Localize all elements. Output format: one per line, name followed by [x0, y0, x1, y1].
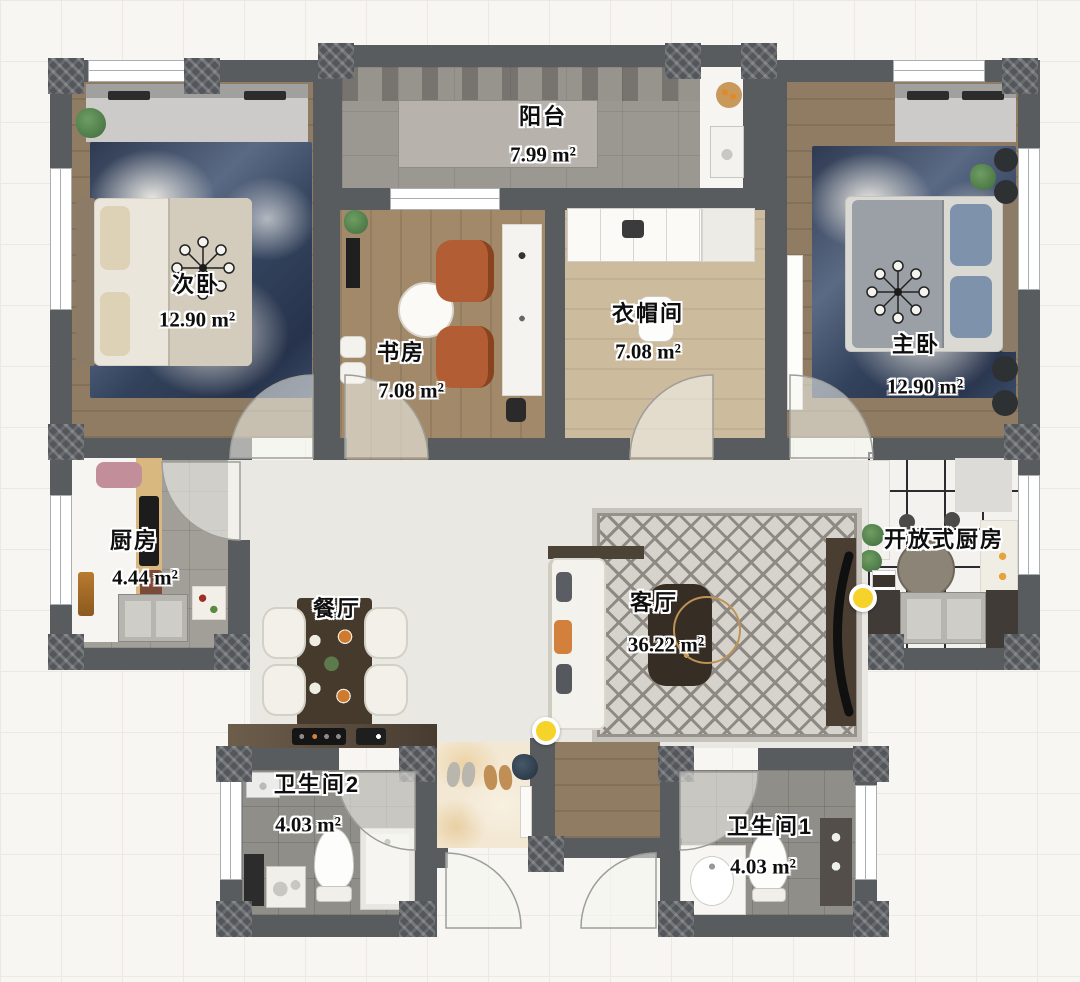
kitchen-label: 厨房: [110, 523, 158, 555]
secondary-bedroom-area: 12.90 m²: [159, 308, 235, 333]
bathroom1-label: 卫生间1: [727, 809, 813, 841]
cloakroom-label: 衣帽间: [612, 296, 684, 328]
corner-pillar: [1004, 424, 1040, 460]
wall: [313, 188, 765, 210]
corner-pillar: [318, 43, 354, 79]
window: [50, 168, 72, 310]
toilet-tank: [752, 888, 786, 902]
wall: [765, 60, 787, 460]
kitchen-area: 4.44 m²: [112, 566, 178, 591]
vanity: [360, 828, 415, 910]
study-area: 7.08 m²: [378, 379, 444, 404]
corner-pillar: [868, 634, 904, 670]
corner-pillar: [528, 836, 564, 872]
balcony-label: 阳台: [519, 99, 567, 131]
stool: [622, 220, 644, 238]
desk: [502, 224, 542, 396]
dining-chair: [364, 664, 408, 716]
dining-chair: [262, 607, 306, 659]
plant: [344, 210, 368, 234]
corner-pillar: [184, 58, 220, 94]
window: [88, 60, 186, 82]
bathroom2-label: 卫生间2: [274, 767, 360, 799]
living-rug: [592, 508, 862, 742]
window: [220, 775, 242, 880]
bay-window-curtain: [895, 84, 1016, 142]
wall: [428, 438, 630, 460]
plant: [862, 524, 884, 546]
window: [855, 785, 877, 880]
stool: [340, 362, 366, 384]
dining-chair: [262, 664, 306, 716]
corner-pillar: [48, 634, 84, 670]
light-marker-icon[interactable]: [532, 717, 560, 745]
floor-plan-canvas: 阳台 7.99 m² 次卧 12.90 m² 书房 7.08 m² 衣帽间 7.…: [0, 0, 1080, 982]
small-appliance: [96, 462, 142, 488]
dining-chair: [364, 607, 408, 659]
nightstand: [994, 180, 1018, 204]
pillow: [100, 292, 130, 356]
wall: [313, 438, 347, 460]
desk-chair: [506, 398, 526, 422]
bathroom1-area: 4.03 m²: [730, 855, 796, 880]
fruit-basket: [716, 82, 742, 108]
sofa-pillow: [554, 620, 572, 654]
bed-headboard: [76, 198, 96, 366]
corner-pillar: [665, 43, 701, 79]
window: [1018, 148, 1040, 290]
pillow: [100, 206, 130, 270]
window: [50, 495, 72, 605]
balcony-area: 7.99 m²: [510, 143, 576, 168]
tv-console: [826, 538, 856, 726]
dresser: [702, 208, 755, 262]
armchair: [436, 240, 494, 302]
kitchen-mat: [955, 458, 1012, 512]
bed-duvet: [852, 200, 944, 348]
shoe-cabinet: [520, 786, 532, 838]
pillow: [950, 276, 992, 338]
corner-pillar: [48, 58, 84, 94]
plant: [970, 164, 996, 190]
master-bedroom-area: 12.90 m²: [887, 375, 963, 400]
corner-pillar: [1004, 634, 1040, 670]
open-kitchen-sink: [900, 592, 986, 644]
corner-pillar: [1002, 58, 1038, 94]
bath-cabinet: [244, 854, 264, 906]
corner-pillar: [399, 901, 435, 937]
pillow: [950, 204, 992, 266]
wall: [418, 848, 448, 868]
plant: [860, 550, 882, 572]
armchair: [436, 326, 494, 388]
corner-pillar: [853, 746, 889, 782]
bathroom2-area: 4.03 m²: [275, 813, 341, 838]
living-room-label: 客厅: [630, 585, 678, 617]
window: [1018, 475, 1040, 575]
corner-pillar: [853, 901, 889, 937]
window: [390, 188, 500, 210]
kitchen-sink: [118, 594, 188, 642]
wall: [713, 438, 790, 460]
side-table: [992, 356, 1018, 382]
secondary-bedroom-label: 次卧: [172, 267, 220, 299]
bath-shelf: [820, 818, 852, 906]
kitchen-cart: [192, 586, 226, 620]
sofa-pillow: [556, 572, 572, 602]
study-label: 书房: [377, 335, 425, 367]
stool: [340, 336, 366, 358]
kitchen-door-gap-floor: [228, 460, 250, 540]
media-cabinet: [346, 238, 360, 288]
wall: [545, 210, 565, 460]
light-marker-icon[interactable]: [849, 584, 877, 612]
entry-plant: [512, 754, 538, 780]
laundry-sink: [710, 126, 744, 178]
open-kitchen-label: 开放式厨房: [884, 522, 1004, 554]
induction-hob: [292, 728, 346, 745]
corner-pillar: [48, 424, 84, 460]
washing-machine: [266, 866, 306, 908]
balcony-drying-rack: [342, 67, 700, 101]
toilet-tank: [316, 886, 352, 902]
corner-pillar: [658, 746, 694, 782]
corner-pillar: [216, 901, 252, 937]
cloakroom-area: 7.08 m²: [615, 340, 681, 365]
plant: [76, 108, 106, 138]
corner-pillar: [399, 746, 435, 782]
corner-pillar: [741, 43, 777, 79]
wardrobe-sliding-door: [787, 255, 803, 410]
counter-sink: [356, 728, 386, 745]
side-table: [992, 390, 1018, 416]
corner-pillar: [216, 746, 252, 782]
sofa-pillow: [556, 664, 572, 694]
dining-room-label: 餐厅: [313, 591, 361, 623]
nightstand: [994, 148, 1018, 172]
living-room-area: 36.22 m²: [628, 633, 704, 658]
corner-pillar: [214, 634, 250, 670]
corner-pillar: [658, 901, 694, 937]
bottles: [78, 572, 94, 616]
entry-corridor-floor: [555, 742, 660, 838]
master-bedroom-label: 主卧: [892, 327, 940, 359]
wall: [320, 45, 705, 67]
vanity-sink: [690, 856, 734, 906]
window: [893, 60, 985, 82]
